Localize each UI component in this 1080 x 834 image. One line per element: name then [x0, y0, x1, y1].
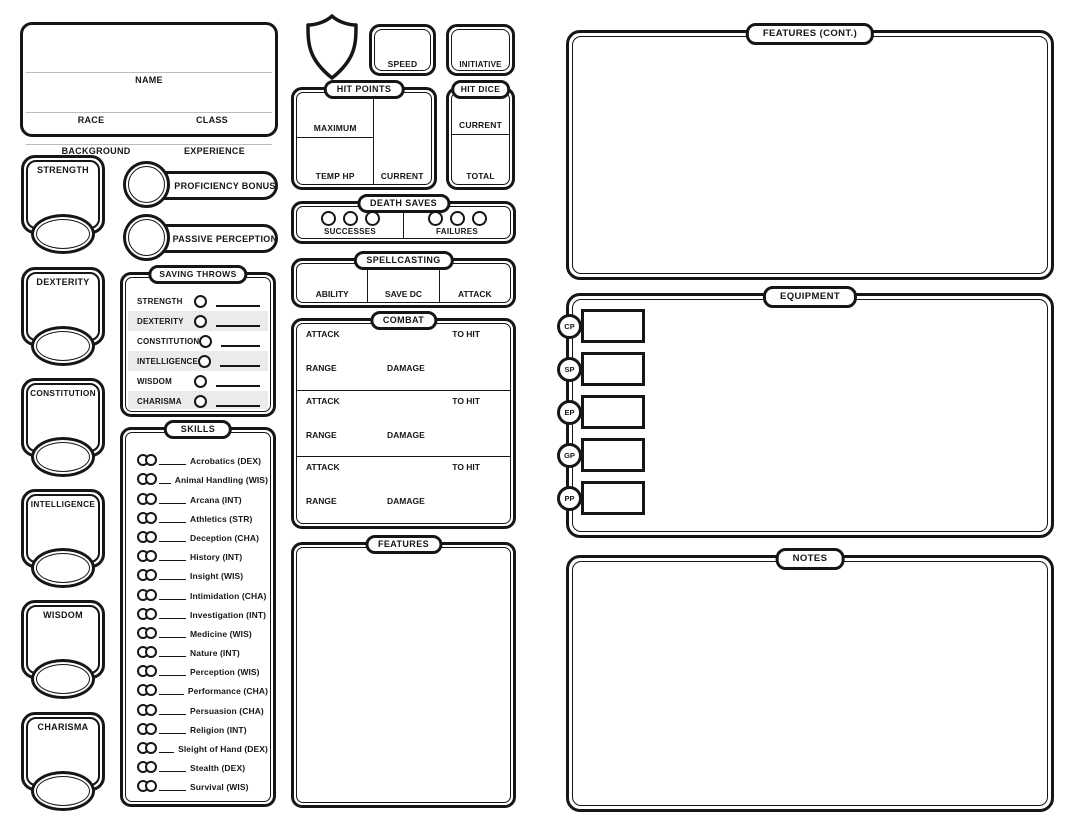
equipment-box: EQUIPMENT CP SP EP GP PP — [566, 293, 1054, 538]
skill-row: Performance (CHA) — [128, 677, 268, 696]
saving-throw-row: INTELLIGENCE — [128, 351, 268, 371]
ability-box-constitution[interactable]: CONSTITUTION — [21, 378, 105, 457]
success-circle[interactable] — [343, 211, 358, 226]
combat-title: COMBAT — [370, 311, 437, 330]
skill-expertise-circle[interactable] — [145, 704, 157, 716]
skill-label: Performance (CHA) — [188, 686, 268, 696]
spellcasting-ability-cell[interactable]: ABILITY — [297, 264, 367, 302]
skill-row: Intimidation (CHA) — [128, 581, 268, 600]
skill-line[interactable] — [159, 637, 186, 638]
saving-throw-circle[interactable] — [194, 295, 207, 308]
skill-line[interactable] — [159, 675, 186, 676]
name-label: NAME — [23, 75, 275, 85]
skill-expertise-circle[interactable] — [145, 589, 157, 601]
ability-box-intelligence[interactable]: INTELLIGENCE — [21, 489, 105, 568]
skill-label: Animal Handling (WIS) — [175, 475, 268, 485]
gp-amount-field[interactable] — [581, 438, 645, 472]
ability-label: DEXTERITY — [24, 277, 102, 287]
skill-row: Persuasion (CHA) — [128, 696, 268, 715]
skill-label: Perception (WIS) — [190, 667, 260, 677]
saving-throw-circle[interactable] — [194, 395, 207, 408]
skill-expertise-circle[interactable] — [145, 646, 157, 658]
ability-label: CHARISMA — [24, 722, 102, 732]
skill-row: Arcana (INT) — [128, 485, 268, 504]
notes-write-area[interactable] — [572, 561, 1048, 806]
features-cont-box: FEATURES (CONT.) — [566, 30, 1054, 280]
skill-line[interactable] — [159, 599, 186, 600]
skill-row: Medicine (WIS) — [128, 620, 268, 639]
skill-label: Persuasion (CHA) — [190, 706, 264, 716]
saving-throw-circle[interactable] — [194, 315, 207, 328]
skills-box: SKILLS Acrobatics (DEX) Animal Handling … — [120, 427, 276, 807]
ep-coin-icon: EP — [557, 400, 582, 425]
skill-label: Religion (INT) — [190, 725, 247, 735]
passive-perception-circle[interactable] — [123, 214, 170, 261]
saving-throw-label: STRENGTH — [137, 297, 194, 306]
skill-row: Insight (WIS) — [128, 562, 268, 581]
ability-modifier-oval[interactable] — [31, 771, 95, 811]
ep-amount-field[interactable] — [581, 395, 645, 429]
skill-line[interactable] — [159, 733, 186, 734]
damage-label: DAMAGE — [387, 363, 425, 373]
saving-throw-row: CHARISMA — [128, 391, 268, 409]
pp-coin-icon: PP — [557, 486, 582, 511]
skill-line[interactable] — [159, 771, 186, 772]
features-write-area[interactable] — [296, 547, 511, 803]
skill-row: Sleight of Hand (DEX) — [128, 735, 268, 754]
saving-throw-line[interactable] — [216, 385, 260, 387]
attack-label: ATTACK — [306, 396, 340, 406]
hit-dice-divider — [452, 134, 509, 135]
saving-throw-circle[interactable] — [194, 375, 207, 388]
skill-label: Athletics (STR) — [190, 514, 252, 524]
ability-label: INTELLIGENCE — [24, 499, 102, 509]
failure-circle[interactable] — [428, 211, 443, 226]
saving-throw-label: WISDOM — [137, 377, 194, 386]
skill-label: Stealth (DEX) — [190, 763, 245, 773]
skill-label: Nature (INT) — [190, 648, 240, 658]
saving-throw-label: CONSTITUTION — [137, 337, 199, 346]
combat-entry[interactable]: ATTACK TO HIT RANGE DAMAGE — [297, 456, 510, 523]
shield-icon — [303, 13, 361, 81]
features-cont-write-area[interactable] — [572, 36, 1048, 274]
skill-expertise-circle[interactable] — [145, 684, 157, 696]
saving-throw-row: DEXTERITY — [128, 311, 268, 331]
skill-label: Deception (CHA) — [190, 533, 259, 543]
ability-box-wisdom[interactable]: WISDOM — [21, 600, 105, 679]
skill-line[interactable] — [159, 752, 174, 753]
skill-expertise-circle[interactable] — [145, 473, 157, 485]
skill-row: Perception (WIS) — [128, 658, 268, 677]
skill-expertise-circle[interactable] — [145, 493, 157, 505]
features-cont-title: FEATURES (CONT.) — [746, 23, 874, 45]
character-info-box[interactable]: NAME RACE CLASS BACKGROUND EXPERIENCE — [20, 22, 278, 137]
hp-temp-label: TEMP HP — [297, 171, 373, 181]
skill-line[interactable] — [159, 560, 186, 561]
skill-row: Stealth (DEX) — [128, 754, 268, 773]
class-label: CLASS — [149, 115, 275, 125]
skill-row: Animal Handling (WIS) — [128, 466, 268, 485]
initiative-box[interactable]: INITIATIVE — [446, 24, 515, 76]
hit-dice-title: HIT DICE — [451, 80, 511, 99]
saving-throw-row: WISDOM — [128, 371, 268, 391]
failure-circle[interactable] — [472, 211, 487, 226]
success-circle[interactable] — [321, 211, 336, 226]
skill-line[interactable] — [159, 656, 186, 657]
saving-throw-label: DEXTERITY — [137, 317, 194, 326]
proficiency-bonus-circle[interactable] — [123, 161, 170, 208]
ability-label: STRENGTH — [24, 165, 102, 175]
skill-label: Medicine (WIS) — [190, 629, 252, 639]
race-label: RACE — [23, 115, 159, 125]
sp-coin-icon: SP — [557, 357, 582, 382]
saving-throw-row: CONSTITUTION — [128, 331, 268, 351]
race-class-underline — [26, 112, 272, 113]
range-label: RANGE — [306, 363, 337, 373]
damage-label: DAMAGE — [387, 496, 425, 506]
skill-line[interactable] — [159, 618, 186, 619]
hp-current-label: CURRENT — [373, 171, 431, 181]
sp-amount-field[interactable] — [581, 352, 645, 386]
spellcasting-box: SPELLCASTING ABILITY SAVE DC ATTACK — [291, 258, 516, 308]
skill-label: Arcana (INT) — [190, 495, 242, 505]
hit-points-box[interactable]: HIT POINTS MAXIMUM TEMP HP CURRENT — [291, 87, 437, 190]
ability-label: WISDOM — [24, 610, 102, 620]
pp-amount-field[interactable] — [581, 481, 645, 515]
success-circle[interactable] — [365, 211, 380, 226]
saving-throw-label: CHARISMA — [137, 397, 194, 406]
skill-line[interactable] — [159, 579, 186, 580]
experience-label: EXPERIENCE — [154, 146, 275, 156]
skill-expertise-circle[interactable] — [145, 608, 157, 620]
hit-dice-total-label: TOTAL — [452, 171, 509, 181]
ability-box-strength[interactable]: STRENGTH — [21, 155, 105, 234]
skill-line[interactable] — [159, 714, 186, 715]
death-saves-title: DEATH SAVES — [357, 194, 450, 213]
skill-expertise-circle[interactable] — [145, 761, 157, 773]
hit-dice-current-label: CURRENT — [452, 120, 509, 130]
ability-box-dexterity[interactable]: DEXTERITY — [21, 267, 105, 346]
ability-label: CONSTITUTION — [24, 388, 102, 398]
features-title: FEATURES — [365, 535, 442, 554]
notes-title: NOTES — [776, 548, 845, 570]
combat-entry[interactable]: ATTACK TO HIT RANGE DAMAGE — [297, 390, 510, 457]
combat-entry[interactable]: ATTACK TO HIT RANGE DAMAGE — [297, 324, 510, 390]
death-saves-box: DEATH SAVES SUCCESSES FAILURES — [291, 201, 516, 244]
cp-amount-field[interactable] — [581, 309, 645, 343]
failure-circle[interactable] — [450, 211, 465, 226]
to-hit-label: TO HIT — [452, 396, 480, 406]
skill-row: Investigation (INT) — [128, 601, 268, 620]
save-dc-label: SAVE DC — [368, 289, 438, 299]
cp-coin-icon: CP — [557, 314, 582, 339]
ability-label: ABILITY — [297, 289, 367, 299]
features-box: FEATURES — [291, 542, 516, 808]
saving-throw-line[interactable] — [216, 305, 260, 307]
equipment-title: EQUIPMENT — [763, 286, 857, 308]
saving-throw-row: STRENGTH — [128, 291, 268, 311]
skill-line[interactable] — [159, 483, 171, 484]
saving-throw-circle[interactable] — [198, 355, 211, 368]
attack-label: ATTACK — [306, 462, 340, 472]
background-experience-underline — [26, 144, 272, 145]
damage-label: DAMAGE — [387, 430, 425, 440]
saving-throw-line[interactable] — [216, 405, 260, 407]
saving-throw-line[interactable] — [216, 325, 260, 327]
skill-expertise-circle[interactable] — [145, 627, 157, 639]
skill-row: History (INT) — [128, 543, 268, 562]
skill-expertise-circle[interactable] — [145, 780, 157, 792]
skill-label: Sleight of Hand (DEX) — [178, 744, 268, 754]
spellcasting-attack-cell[interactable]: ATTACK — [440, 264, 510, 302]
skill-row: Athletics (STR) — [128, 505, 268, 524]
skill-label: Insight (WIS) — [190, 571, 243, 581]
skill-expertise-circle[interactable] — [145, 723, 157, 735]
to-hit-label: TO HIT — [452, 462, 480, 472]
ability-modifier-oval[interactable] — [31, 548, 95, 588]
skill-label: Survival (WIS) — [190, 782, 249, 792]
saving-throw-label: INTELLIGENCE — [137, 357, 198, 366]
skill-label: Investigation (INT) — [190, 610, 266, 620]
speed-label: SPEED — [372, 59, 433, 69]
skill-expertise-circle[interactable] — [145, 742, 157, 754]
skill-expertise-circle[interactable] — [145, 512, 157, 524]
skill-expertise-circle[interactable] — [145, 550, 157, 562]
character-sheet: NAME RACE CLASS BACKGROUND EXPERIENCE SP… — [0, 0, 1080, 834]
skill-expertise-circle[interactable] — [145, 569, 157, 581]
skill-expertise-circle[interactable] — [145, 454, 157, 466]
ability-modifier-oval[interactable] — [31, 326, 95, 366]
skill-row: Acrobatics (DEX) — [128, 447, 268, 466]
saving-throw-circle[interactable] — [199, 335, 212, 348]
saving-throw-line[interactable] — [221, 345, 260, 347]
hp-horizontal-divider — [297, 137, 373, 138]
failures-label: FAILURES — [436, 227, 478, 236]
range-label: RANGE — [306, 430, 337, 440]
attack-label: ATTACK — [440, 289, 510, 299]
hit-dice-box[interactable]: HIT DICE CURRENT TOTAL — [446, 87, 515, 190]
skill-line[interactable] — [159, 541, 186, 542]
name-underline — [26, 72, 272, 73]
skill-row: Deception (CHA) — [128, 524, 268, 543]
initiative-label: INITIATIVE — [449, 60, 512, 69]
skill-row: Religion (INT) — [128, 716, 268, 735]
skill-expertise-circle[interactable] — [145, 665, 157, 677]
speed-box[interactable]: SPEED — [369, 24, 436, 76]
skills-title: SKILLS — [164, 420, 232, 439]
hp-maximum-label: MAXIMUM — [297, 123, 373, 133]
spellcasting-title: SPELLCASTING — [353, 251, 453, 270]
skill-label: Intimidation (CHA) — [190, 591, 266, 601]
skill-line[interactable] — [159, 522, 186, 523]
saving-throw-line[interactable] — [220, 365, 260, 367]
skill-expertise-circle[interactable] — [145, 531, 157, 543]
range-label: RANGE — [306, 496, 337, 506]
ability-modifier-oval[interactable] — [31, 659, 95, 699]
skill-label: Acrobatics (DEX) — [190, 456, 261, 466]
ability-modifier-oval[interactable] — [31, 214, 95, 254]
attack-label: ATTACK — [306, 329, 340, 339]
skill-label: History (INT) — [190, 552, 242, 562]
combat-box: COMBAT ATTACK TO HIT RANGE DAMAGE ATTACK… — [291, 318, 516, 529]
notes-box: NOTES — [566, 555, 1054, 812]
skill-line[interactable] — [159, 790, 186, 791]
hit-points-title: HIT POINTS — [324, 80, 405, 99]
skill-row: Nature (INT) — [128, 639, 268, 658]
gp-coin-icon: GP — [557, 443, 582, 468]
skill-line[interactable] — [159, 464, 186, 465]
successes-label: SUCCESSES — [324, 227, 376, 236]
saving-throws-title: SAVING THROWS — [148, 265, 247, 284]
to-hit-label: TO HIT — [452, 329, 480, 339]
ability-box-charisma[interactable]: CHARISMA — [21, 712, 105, 791]
saving-throws-box: SAVING THROWS STRENGTH DEXTERITY CONSTIT… — [120, 272, 276, 417]
skill-line[interactable] — [159, 503, 186, 504]
ability-modifier-oval[interactable] — [31, 437, 95, 477]
skill-line[interactable] — [159, 694, 184, 695]
skill-row: Survival (WIS) — [128, 773, 268, 792]
